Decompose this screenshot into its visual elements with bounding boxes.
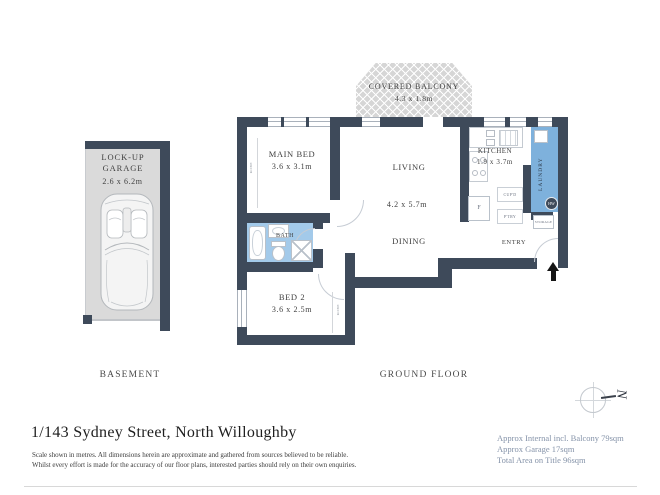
- garage-label: LOCK-UP GARAGE: [93, 152, 153, 173]
- area-summary: Approx Internal incl. Balcony 79sqm Appr…: [497, 433, 624, 466]
- disclaimer-line-1: Scale shown in metres. All dimensions he…: [32, 451, 348, 459]
- car-illustration: [98, 190, 156, 314]
- window-balcony: [362, 117, 380, 127]
- window-main-bed-mullion-1: [281, 117, 284, 127]
- fridge-label: F: [469, 197, 489, 220]
- balcony-door-opening: [423, 117, 443, 127]
- window-main-bed: [268, 117, 330, 127]
- garage-dims: 2.6 x 6.2m: [85, 177, 160, 187]
- wall-bath-right-b: [313, 249, 323, 268]
- wall-bath-bottom: [237, 262, 313, 272]
- balcony-dims: 4.3 x 1.8m: [356, 94, 472, 103]
- storage-box: STORAGE: [533, 215, 554, 229]
- basement-label: BASEMENT: [85, 370, 175, 382]
- wall-entry-bottom: [452, 258, 537, 269]
- laundry-tub: [534, 130, 548, 143]
- window-kitchen-1: [484, 117, 505, 127]
- bath-label: BATH: [267, 233, 303, 241]
- balcony-label: COVERED BALCONY: [356, 82, 472, 92]
- pantry-label: P'TRY: [498, 210, 522, 224]
- bed2-dims: 3.6 x 2.5m: [248, 305, 336, 315]
- footer-rule: [24, 486, 637, 487]
- hot-water-label: HW: [546, 198, 557, 209]
- ground-floor-label: GROUND FLOOR: [362, 370, 486, 382]
- living-label: LIVING: [369, 162, 449, 173]
- compass-circle: [580, 387, 606, 413]
- area-internal: Approx Internal incl. Balcony 79sqm: [497, 433, 624, 444]
- sink-drainer: [499, 130, 518, 146]
- living-dims: 4.2 x 5.7m: [367, 200, 447, 210]
- wall-mainbed-bottom: [237, 213, 330, 223]
- sink-bowl-2: [486, 139, 495, 146]
- wall-kitchen-laundry: [523, 165, 531, 213]
- address-title: 1/143 Sydney Street, North Willoughby: [31, 424, 297, 442]
- garage-wall-post: [83, 315, 92, 324]
- garage-door-line: [85, 319, 160, 321]
- fridge: F: [468, 196, 490, 221]
- garage-wall-top: [85, 141, 170, 149]
- compass-north-letter: N: [613, 389, 629, 398]
- garage-wall-right: [160, 141, 170, 331]
- floor-plan-page: LOCK-UP GARAGE 2.6 x 6.2m COVERED BALCON…: [0, 0, 660, 495]
- sink-bowl-1: [486, 130, 495, 137]
- dining-label: DINING: [369, 236, 449, 247]
- storage-label: STORAGE: [534, 216, 553, 229]
- bed2-robe-label: ROBE: [336, 304, 340, 315]
- main-bed-door-arc: [337, 200, 364, 227]
- bathtub-inner: [252, 230, 263, 256]
- cupboard-label: CUP'D: [498, 188, 522, 202]
- balcony-area: COVERED BALCONY 4.3 x 1.8m: [356, 63, 472, 118]
- cupboard: CUP'D: [497, 187, 523, 202]
- window-main-bed-mullion-2: [306, 117, 309, 127]
- bathtub: [249, 226, 266, 260]
- wall-bed2-bottom: [237, 335, 355, 345]
- window-bed2: [237, 290, 247, 327]
- entry-label: ENTRY: [488, 239, 540, 247]
- shower: [291, 240, 312, 261]
- area-garage: Approx Garage 17sqm: [497, 444, 624, 455]
- pantry: P'TRY: [497, 209, 523, 224]
- main-bed-label: MAIN BED: [250, 149, 334, 160]
- window-laundry: [538, 117, 552, 127]
- toilet-bowl: [272, 246, 285, 261]
- burner-4: [480, 170, 486, 176]
- wall-right: [558, 117, 568, 268]
- kitchen-label: KITCHEN: [467, 147, 523, 156]
- main-bed-dims: 3.6 x 3.1m: [250, 162, 334, 172]
- burner-3: [472, 170, 478, 176]
- area-total: Total Area on Title 96sqm: [497, 455, 624, 466]
- wall-bed2-right: [345, 253, 355, 345]
- laundry-label: LAUNDRY: [538, 145, 550, 203]
- disclaimer-line-2: Whilst every effort is made for the accu…: [32, 461, 356, 469]
- hot-water-unit: HW: [545, 197, 558, 210]
- window-kitchen-2: [510, 117, 526, 127]
- entry-arrow-head: [547, 262, 559, 271]
- bed2-label: BED 2: [248, 292, 336, 303]
- entry-arrow-stem: [551, 271, 556, 281]
- kitchen-dims: 1.9 x 3.7m: [467, 158, 523, 167]
- wall-dining-step: [438, 258, 452, 288]
